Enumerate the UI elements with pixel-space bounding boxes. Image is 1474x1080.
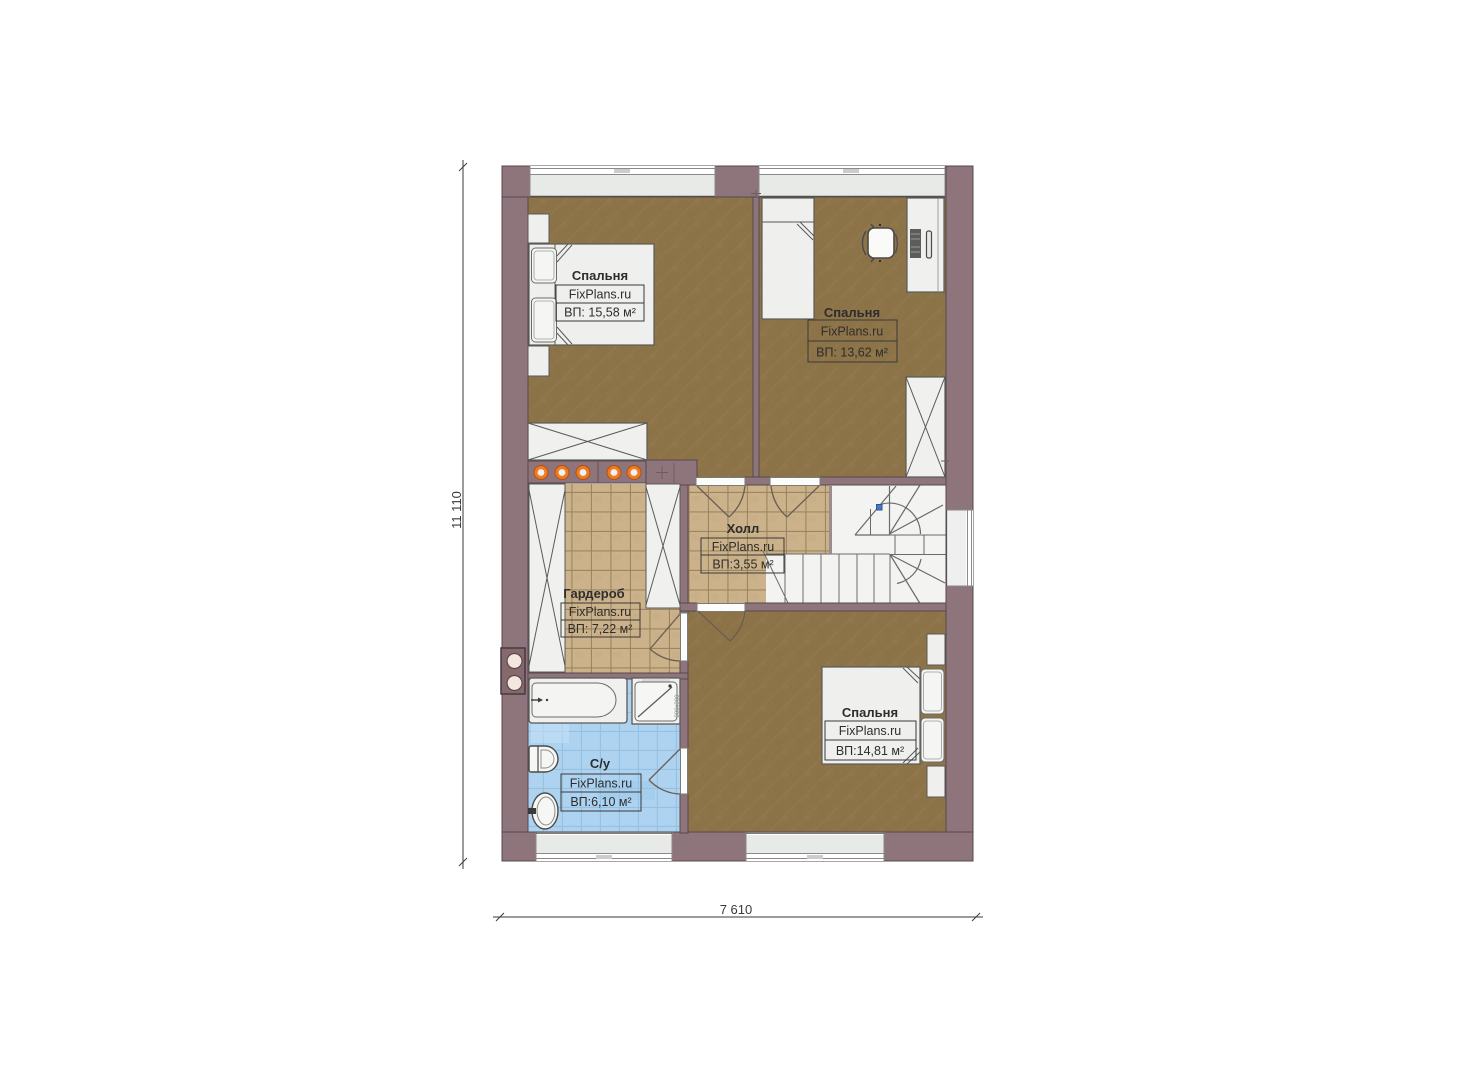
svg-text:FixPlans.ru: FixPlans.ru	[570, 777, 633, 791]
svg-text:7 610: 7 610	[720, 902, 753, 917]
svg-text:ВП: 7,22 м²: ВП: 7,22 м²	[568, 622, 633, 636]
svg-text:FixPlans.ru: FixPlans.ru	[839, 724, 902, 738]
svg-text:ВП:14,81 м²: ВП:14,81 м²	[836, 744, 904, 758]
svg-text:FixPlans.ru: FixPlans.ru	[569, 288, 632, 302]
svg-text:Спальня: Спальня	[572, 268, 628, 283]
svg-text:С/у: С/у	[590, 756, 611, 771]
svg-text:ВП: 13,62 м²: ВП: 13,62 м²	[816, 346, 888, 360]
svg-text:FixPlans.ru: FixPlans.ru	[569, 605, 632, 619]
svg-text:900x900: 900x900	[675, 694, 681, 718]
svg-text:Спальня: Спальня	[824, 305, 880, 320]
svg-text:Холл: Холл	[727, 521, 760, 536]
svg-text:Спальня: Спальня	[842, 705, 898, 720]
svg-text:ВП: 15,58 м²: ВП: 15,58 м²	[564, 306, 636, 320]
svg-text:FixPlans.ru: FixPlans.ru	[821, 325, 884, 339]
svg-text:ВП:6,10 м²: ВП:6,10 м²	[570, 795, 631, 809]
svg-text:ВП:3,55 м²: ВП:3,55 м²	[712, 558, 773, 572]
svg-text:11 110: 11 110	[449, 491, 464, 529]
svg-text:Гардероб: Гардероб	[563, 586, 624, 601]
svg-text:FixPlans.ru: FixPlans.ru	[712, 540, 775, 554]
